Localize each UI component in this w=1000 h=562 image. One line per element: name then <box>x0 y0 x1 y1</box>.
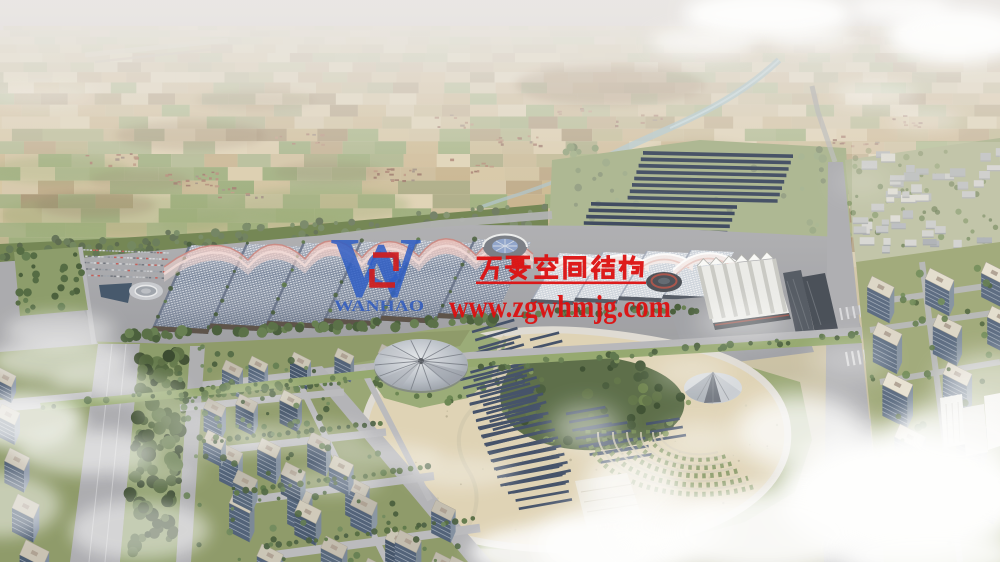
svg-text:WANHAO: WANHAO <box>334 298 424 315</box>
svg-text:www.zgwhmjg.com: www.zgwhmjg.com <box>449 288 671 324</box>
